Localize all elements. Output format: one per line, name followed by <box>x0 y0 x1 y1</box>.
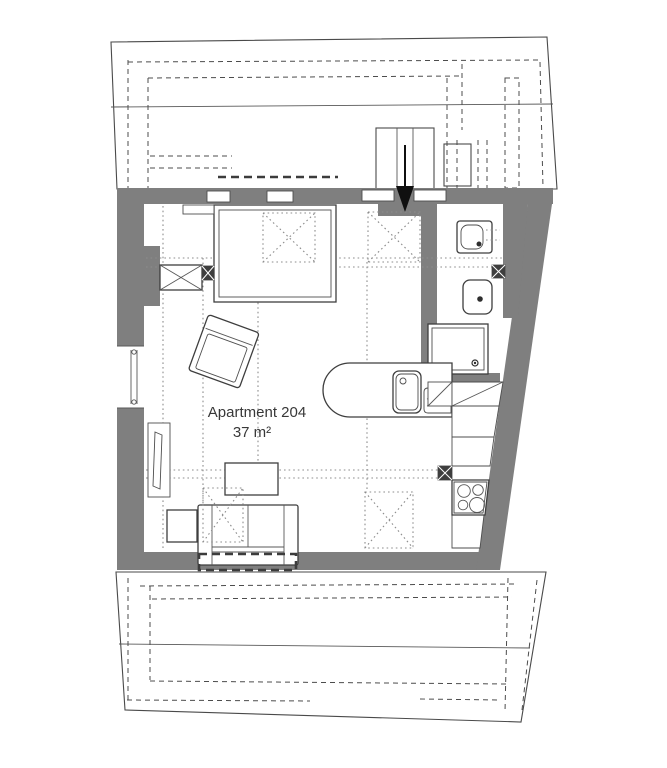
apartment-name-label: Apartment 204 <box>208 404 306 421</box>
bottom-wall <box>117 552 499 570</box>
kitchen-x-box <box>438 466 452 480</box>
toilet <box>457 221 500 253</box>
left-wall-upper <box>117 188 144 346</box>
stove <box>452 480 489 515</box>
bed <box>214 205 336 302</box>
washbasin <box>463 280 492 314</box>
floor-plan-drawing: Apartment 204 37 m² <box>0 0 667 768</box>
top-wall <box>117 188 553 204</box>
entry-wall-step <box>378 204 421 216</box>
left-wall-niche <box>144 246 160 306</box>
floor-plan-page: Apartment 204 37 m² <box>0 0 667 768</box>
apartment-area-label: 37 m² <box>233 424 271 441</box>
wardrobe-x-box <box>202 266 214 280</box>
window <box>117 346 144 408</box>
left-wall-lower <box>117 408 144 552</box>
tv-panel <box>148 423 170 497</box>
wardrobe <box>160 265 202 290</box>
kitchen-sink <box>393 371 421 413</box>
side-table <box>167 510 197 542</box>
lower-roof <box>116 572 546 722</box>
skylight-marker-entry <box>368 212 420 262</box>
sofa <box>198 505 298 565</box>
bathroom-x-box <box>492 265 505 278</box>
skylight-marker-floor <box>365 492 413 548</box>
upper-roof <box>111 37 557 190</box>
bed-shelf <box>183 205 214 214</box>
armchair <box>188 315 259 389</box>
coffee-table <box>225 463 278 495</box>
